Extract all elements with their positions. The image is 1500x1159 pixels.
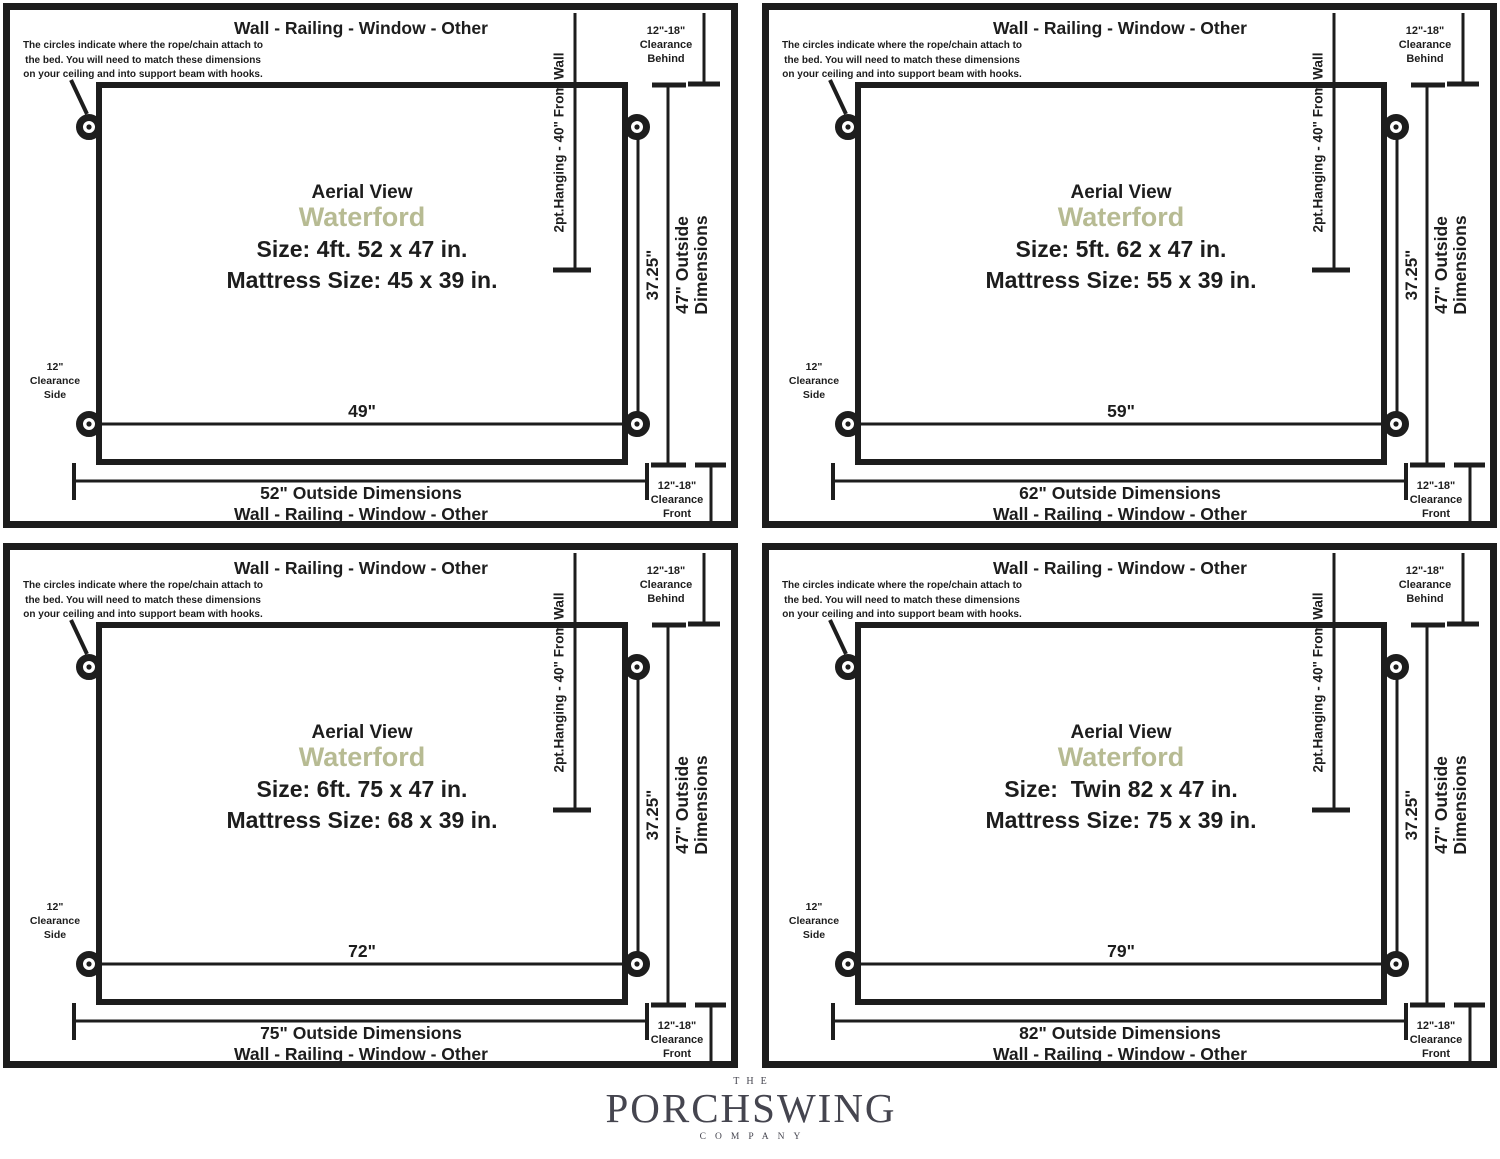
outside-width-label: 52" Outside Dimensions [63, 483, 659, 504]
clearance-behind-label: 12"-18" Clearance Behind [1386, 564, 1464, 606]
hanging-dimension-label: 2pt.Hanging - 40" From Wall [1311, 47, 1326, 239]
note-pointer-line [830, 620, 846, 654]
clearance-front-label: 12"-18" Clearance Front [1398, 479, 1474, 521]
wall-railing-window-label-top: Wall - Railing - Window - Other [822, 558, 1418, 579]
outside-height-label: 47" Outside Dimensions [1432, 719, 1470, 891]
panel-3: Wall - Railing - Window - Other The circ… [3, 543, 738, 1068]
note-pointer-line [71, 620, 87, 654]
clearance-side-label: 12" Clearance Side [9, 360, 101, 402]
size-label: Size: 4ft. 52 x 47 in. [99, 236, 625, 263]
wall-railing-window-label-bottom: Wall - Railing - Window - Other [822, 504, 1418, 525]
panels-grid: Wall - Railing - Window - Other The circ… [0, 0, 1500, 1068]
clearance-behind-label: 12"-18" Clearance Behind [627, 24, 705, 66]
mattress-size-label: Mattress Size: 75 x 39 in. [858, 807, 1384, 834]
wall-railing-window-label-bottom: Wall - Railing - Window - Other [63, 1044, 659, 1065]
hang-width-dimension-label: 37.25" [643, 233, 661, 317]
hang-width-dimension-label: 37.25" [643, 773, 661, 857]
hanging-dimension-label: 2pt.Hanging - 40" From Wall [1311, 587, 1326, 779]
attach-width-label: 59" [858, 401, 1384, 422]
attach-width-label: 72" [99, 941, 625, 962]
clearance-behind-label: 12"-18" Clearance Behind [627, 564, 705, 606]
mattress-size-label: Mattress Size: 55 x 39 in. [858, 267, 1384, 294]
clearance-front-label: 12"-18" Clearance Front [1398, 1019, 1474, 1061]
note-pointer-line [830, 80, 846, 114]
hang-width-dimension-label: 37.25" [1402, 233, 1420, 317]
mattress-size-label: Mattress Size: 45 x 39 in. [99, 267, 625, 294]
note-pointer-line [71, 80, 87, 114]
clearance-side-label: 12" Clearance Side [9, 900, 101, 942]
outside-width-label: 62" Outside Dimensions [822, 483, 1418, 504]
model-name-label: Waterford [858, 742, 1384, 773]
attachment-note: The circles indicate where the rope/chai… [762, 579, 1042, 623]
hanging-dimension-label: 2pt.Hanging - 40" From Wall [552, 47, 567, 239]
hang-width-dimension-label: 37.25" [1402, 773, 1420, 857]
clearance-behind-label: 12"-18" Clearance Behind [1386, 24, 1464, 66]
attachment-note: The circles indicate where the rope/chai… [3, 39, 283, 83]
size-label: Size: 6ft. 75 x 47 in. [99, 776, 625, 803]
wall-railing-window-label-top: Wall - Railing - Window - Other [822, 18, 1418, 39]
wall-railing-window-label-bottom: Wall - Railing - Window - Other [63, 504, 659, 525]
outside-height-label: 47" Outside Dimensions [1432, 179, 1470, 351]
aerial-view-label: Aerial View [99, 722, 625, 744]
model-name-label: Waterford [858, 202, 1384, 233]
attachment-note: The circles indicate where the rope/chai… [3, 579, 283, 623]
wall-railing-window-label-top: Wall - Railing - Window - Other [63, 18, 659, 39]
hanging-dimension-label: 2pt.Hanging - 40" From Wall [552, 587, 567, 779]
aerial-view-label: Aerial View [99, 182, 625, 204]
panel-1: Wall - Railing - Window - Other The circ… [3, 3, 738, 528]
attach-width-label: 49" [99, 401, 625, 422]
mattress-size-label: Mattress Size: 68 x 39 in. [99, 807, 625, 834]
aerial-view-label: Aerial View [858, 722, 1384, 744]
clearance-front-label: 12"-18" Clearance Front [639, 1019, 715, 1061]
wall-railing-window-label-top: Wall - Railing - Window - Other [63, 558, 659, 579]
wall-railing-window-label-bottom: Wall - Railing - Window - Other [822, 1044, 1418, 1065]
clearance-side-label: 12" Clearance Side [768, 360, 860, 402]
attachment-note: The circles indicate where the rope/chai… [762, 39, 1042, 83]
page: Wall - Railing - Window - Other The circ… [0, 0, 1500, 1159]
panel-2: Wall - Railing - Window - Other The circ… [762, 3, 1497, 528]
size-label: Size: 5ft. 62 x 47 in. [858, 236, 1384, 263]
porchswing-logo: THE PORCHSWING COMPANY [0, 1076, 1500, 1142]
model-name-label: Waterford [99, 742, 625, 773]
outside-width-label: 75" Outside Dimensions [63, 1023, 659, 1044]
aerial-view-label: Aerial View [858, 182, 1384, 204]
clearance-side-label: 12" Clearance Side [768, 900, 860, 942]
logo-brand-name: PORCHSWING [0, 1087, 1500, 1130]
size-label: Size: Twin 82 x 47 in. [858, 776, 1384, 803]
panel-4: Wall - Railing - Window - Other The circ… [762, 543, 1497, 1068]
outside-height-label: 47" Outside Dimensions [673, 719, 711, 891]
outside-width-label: 82" Outside Dimensions [822, 1023, 1418, 1044]
attach-width-label: 79" [858, 941, 1384, 962]
logo-company-text: COMPANY [0, 1132, 1500, 1142]
model-name-label: Waterford [99, 202, 625, 233]
outside-height-label: 47" Outside Dimensions [673, 179, 711, 351]
clearance-front-label: 12"-18" Clearance Front [639, 479, 715, 521]
